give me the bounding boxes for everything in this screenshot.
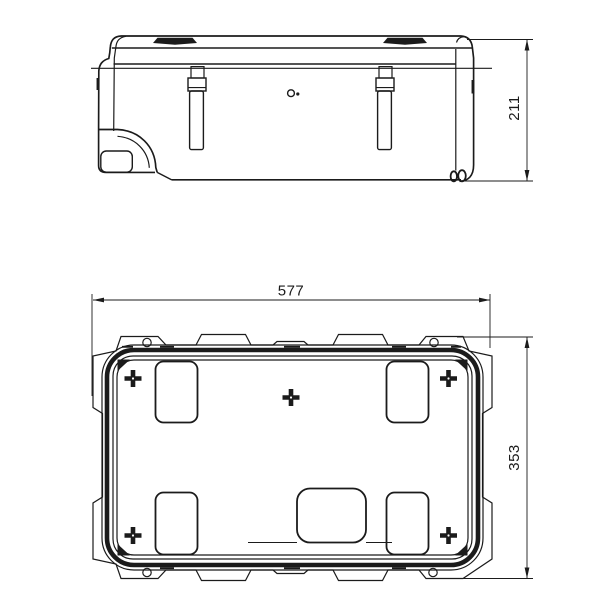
drawing-sheet: 211 — [0, 0, 600, 600]
dimension-label-width: 577 — [278, 283, 305, 300]
dimension-depth: 211 — [462, 40, 533, 182]
arrowhead-left-icon — [93, 298, 104, 303]
left-bumper-outer — [99, 47, 111, 127]
dimension-height: 353 — [447, 337, 533, 579]
outer-contour — [93, 335, 492, 581]
lock-hole — [288, 90, 295, 97]
lid-grip-slot-left — [153, 38, 197, 45]
latch-buckle — [188, 78, 206, 91]
lid-grip-slot-right — [383, 38, 427, 45]
screw-cross-marker — [283, 389, 300, 406]
rubber-foot — [387, 493, 429, 555]
recess-panel — [297, 489, 366, 543]
bumper-foot-pad — [458, 170, 466, 181]
corner-arc-inner — [116, 36, 126, 47]
rubber-foot — [387, 362, 429, 423]
technical-drawing-canvas: 211 — [0, 0, 600, 600]
bottom-view — [93, 335, 492, 581]
arrowhead-down-icon — [525, 170, 530, 181]
rim-seal-band — [107, 350, 478, 565]
corner-foot-pad — [101, 151, 133, 172]
screw-cross-marker — [440, 370, 457, 387]
screw-cross-marker — [125, 527, 142, 544]
corner-arc-inner — [457, 37, 465, 43]
latch-left — [188, 67, 206, 150]
rim-inner-line — [113, 356, 472, 559]
left-bumper-inner — [114, 48, 116, 132]
right-bumper-outer — [460, 47, 474, 181]
latch-strap — [378, 91, 392, 150]
bottom-step — [157, 172, 171, 179]
latch-right — [376, 67, 394, 150]
rubber-foot — [156, 362, 198, 423]
side-view — [91, 36, 492, 181]
dimension-label-height: 353 — [506, 444, 523, 471]
arrowhead-up-icon — [525, 40, 530, 51]
lock-pin — [296, 92, 299, 95]
screw-cross-marker — [125, 370, 142, 387]
latch-buckle — [376, 78, 394, 91]
dimension-width: 577 — [92, 283, 490, 397]
corner-arc — [461, 36, 472, 47]
dimension-label-depth: 211 — [506, 95, 523, 120]
arrowhead-down-icon — [525, 568, 530, 579]
rubber-foot — [156, 493, 198, 555]
rim-outer-line — [102, 345, 483, 570]
latch-strap — [190, 91, 204, 150]
arrowhead-right-icon — [479, 298, 490, 303]
arrowhead-up-icon — [525, 337, 530, 348]
screw-cross-marker — [440, 527, 457, 544]
corner-foot-outline — [99, 127, 155, 172]
